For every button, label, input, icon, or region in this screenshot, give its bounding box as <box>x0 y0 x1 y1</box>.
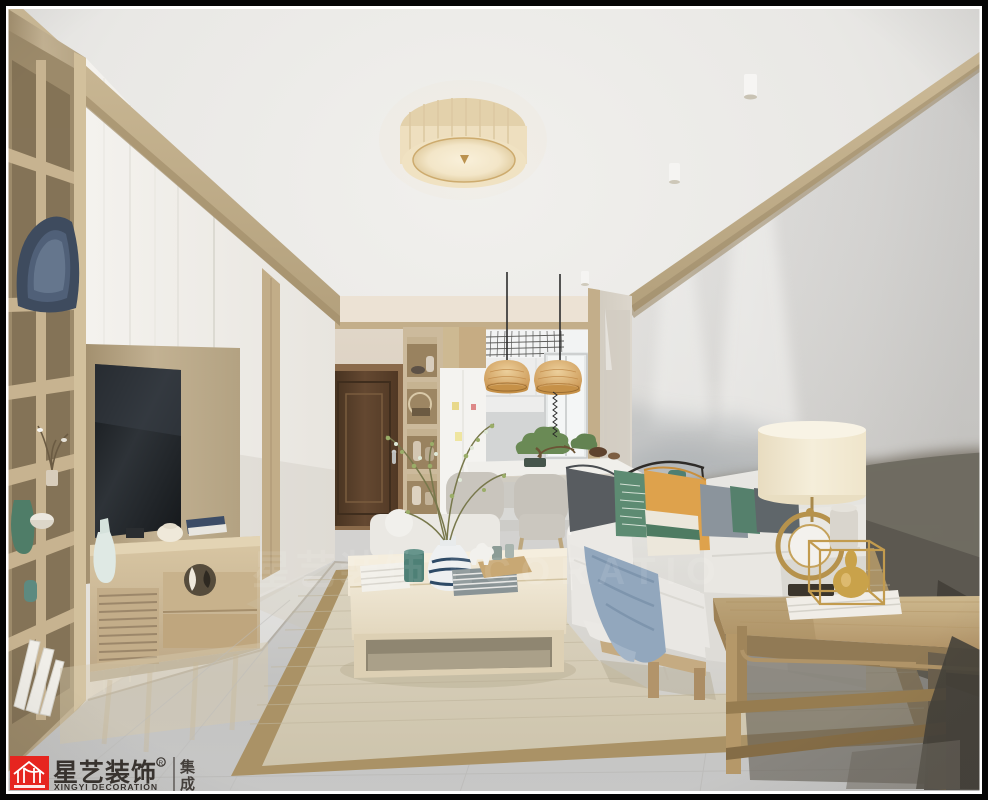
svg-text:集: 集 <box>179 758 196 776</box>
svg-text:R: R <box>159 760 164 767</box>
svg-text:成: 成 <box>180 775 195 793</box>
svg-text:XINGYI DECORATION: XINGYI DECORATION <box>54 782 158 792</box>
